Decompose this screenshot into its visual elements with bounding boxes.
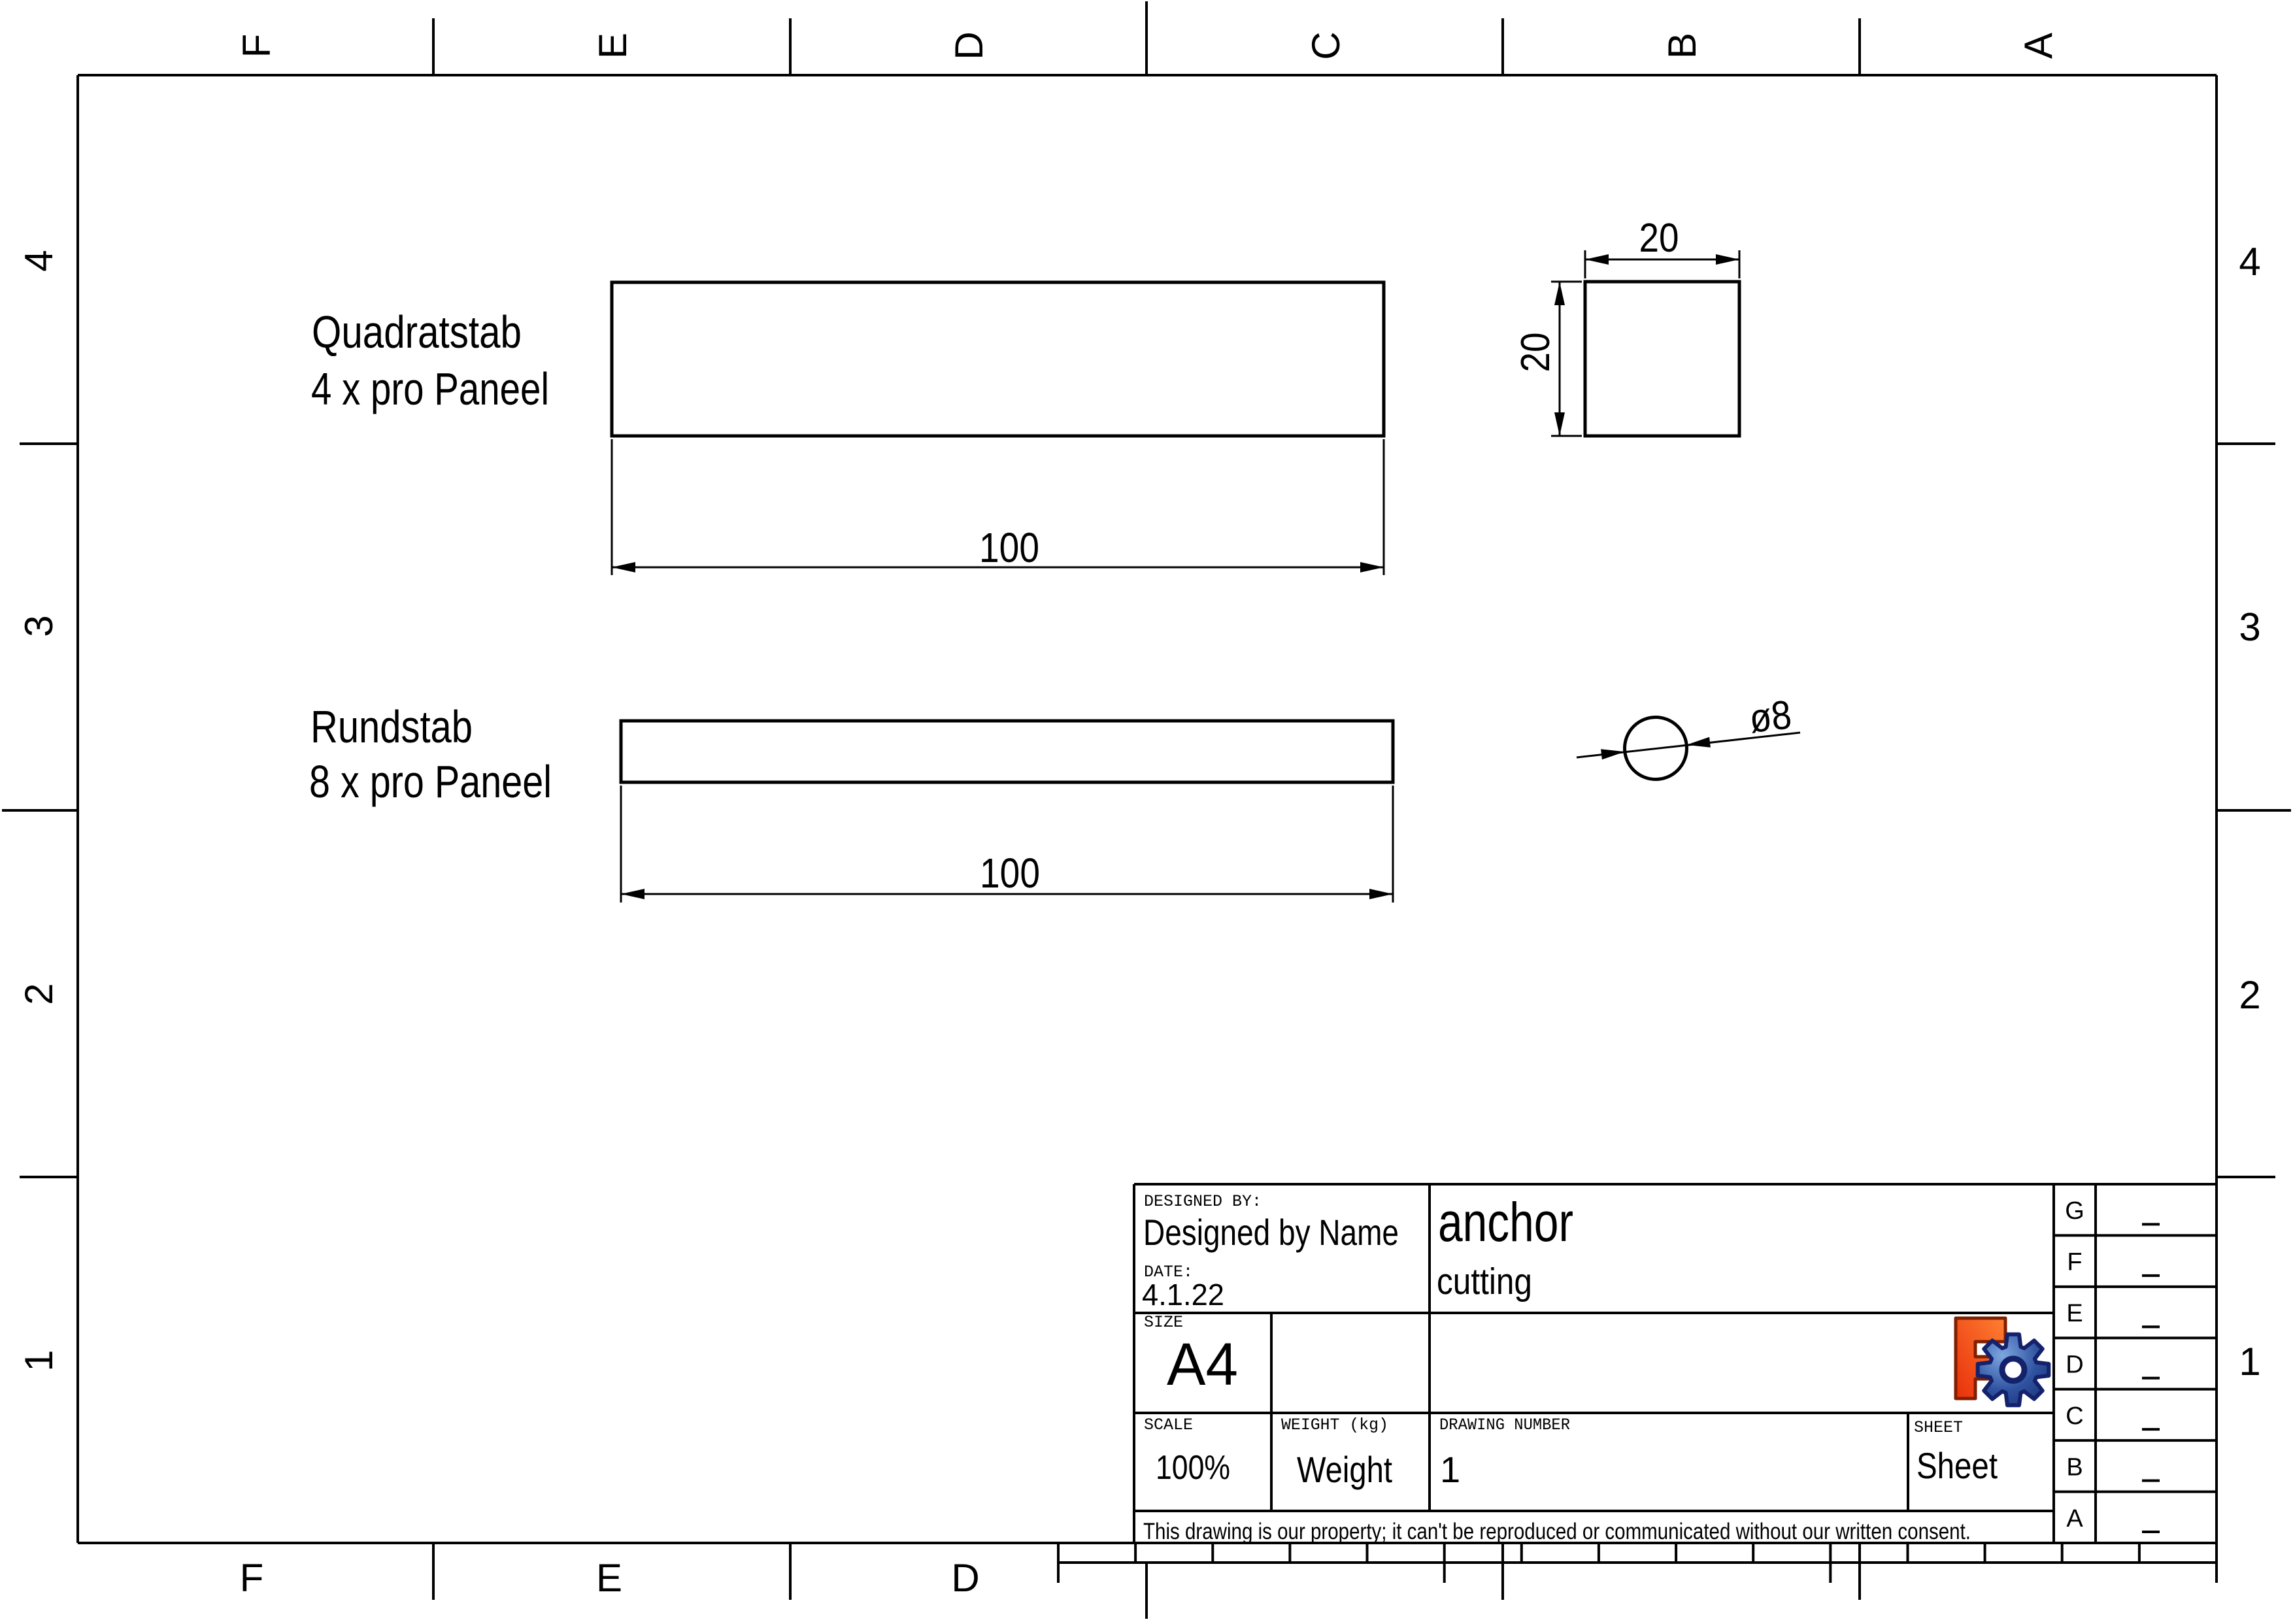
svg-text:C: C	[1304, 31, 1348, 59]
svg-text:F: F	[2067, 1249, 2082, 1276]
svg-text:D: D	[951, 1556, 979, 1600]
svg-text:1: 1	[17, 1350, 61, 1371]
svg-text:Rundstab: Rundstab	[310, 701, 473, 752]
svg-text:8 x pro Paneel: 8 x pro Paneel	[309, 756, 552, 807]
svg-text:E: E	[2066, 1300, 2083, 1327]
svg-text:SHEET: SHEET	[1914, 1418, 1963, 1437]
svg-text:F: F	[235, 34, 278, 58]
svg-text:DESIGNED BY:: DESIGNED BY:	[1144, 1192, 1262, 1211]
svg-text:100: 100	[979, 524, 1039, 571]
svg-text:A: A	[2066, 1505, 2083, 1533]
svg-text:Quadratstab: Quadratstab	[312, 307, 522, 357]
svg-text:WEIGHT (kg): WEIGHT (kg)	[1281, 1416, 1388, 1434]
svg-text:SCALE: SCALE	[1144, 1416, 1193, 1434]
svg-text:A4: A4	[1167, 1331, 1238, 1398]
svg-text:20: 20	[1639, 216, 1679, 261]
svg-text:E: E	[596, 1556, 622, 1600]
svg-text:4: 4	[17, 250, 61, 271]
svg-text:E: E	[591, 33, 635, 59]
svg-text:3: 3	[17, 615, 61, 637]
svg-text:D: D	[2066, 1351, 2083, 1379]
svg-text:cutting: cutting	[1437, 1261, 1532, 1302]
svg-text:Designed by Name: Designed by Name	[1143, 1212, 1399, 1253]
svg-text:1: 1	[1440, 1449, 1460, 1490]
svg-text:D: D	[947, 31, 991, 59]
svg-text:4 x pro Paneel: 4 x pro Paneel	[311, 363, 549, 414]
svg-text:4: 4	[2239, 240, 2260, 284]
svg-text:DRAWING NUMBER: DRAWING NUMBER	[1439, 1416, 1570, 1434]
svg-text:4.1.22: 4.1.22	[1142, 1278, 1224, 1312]
svg-text:G: G	[2065, 1197, 2084, 1225]
svg-text:B: B	[2066, 1453, 2083, 1481]
svg-text:ø8: ø8	[1747, 692, 1794, 742]
svg-text:2: 2	[2239, 973, 2260, 1017]
svg-text:1: 1	[2239, 1340, 2260, 1384]
svg-text:anchor: anchor	[1438, 1191, 1573, 1253]
svg-text:100: 100	[980, 850, 1040, 897]
svg-text:Weight: Weight	[1297, 1449, 1392, 1490]
svg-text:B: B	[1660, 33, 1704, 59]
svg-text:20: 20	[1513, 333, 1558, 373]
svg-text:2: 2	[17, 983, 61, 1004]
svg-text:F: F	[240, 1556, 264, 1600]
svg-text:100%: 100%	[1156, 1449, 1230, 1487]
svg-text:This drawing is our property;: This drawing is our property; it can't b…	[1143, 1519, 1971, 1544]
svg-text:C: C	[2066, 1402, 2083, 1430]
svg-text:SIZE: SIZE	[1144, 1313, 1183, 1332]
svg-text:A: A	[2017, 33, 2060, 59]
svg-text:Sheet: Sheet	[1916, 1445, 1998, 1486]
svg-text:3: 3	[2239, 605, 2260, 649]
